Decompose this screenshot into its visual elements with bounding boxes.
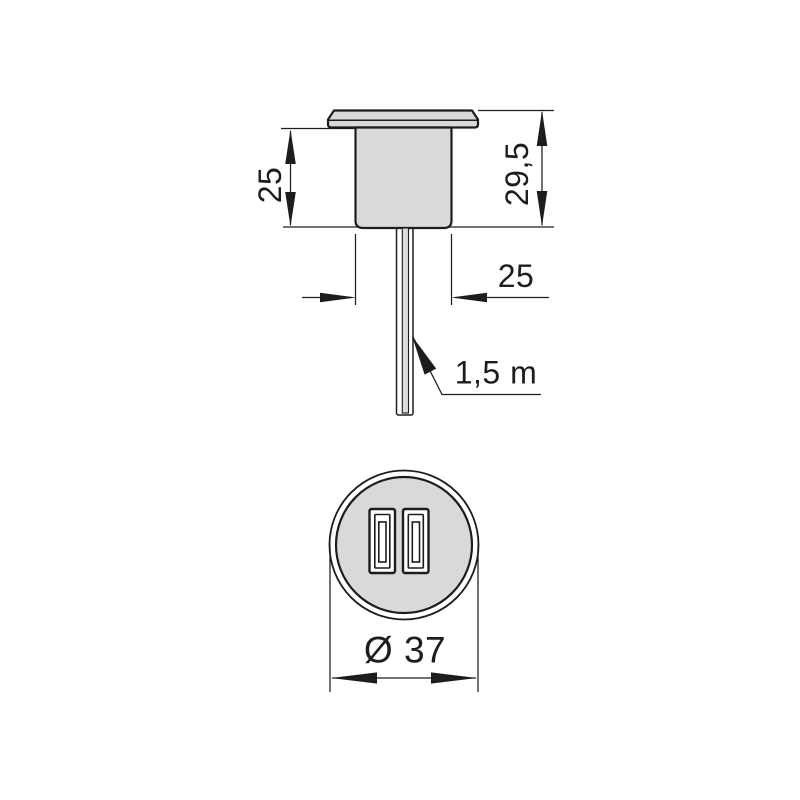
front-view: Ø 37 [330,471,479,693]
cable [397,228,414,415]
dimension-label-total-height: 29,5 [499,142,535,206]
usb-port-tongue [379,522,386,562]
arrow-right-icon [431,672,477,683]
arrow-right-icon [320,293,356,303]
dimension-label-diameter: Ø 37 [364,630,446,671]
cable-length-callout: 1,5 m [412,336,541,395]
usb-port-right [403,509,429,573]
arrow-down-icon [537,191,548,227]
dimension-label-body-height: 25 [252,167,288,204]
dimension-total-height: 29,5 [499,111,547,227]
technical-drawing: 25 29,5 [0,0,800,800]
dimension-label-body-width: 25 [498,258,535,294]
arrow-left-icon [331,672,377,683]
arrow-up-icon [285,130,296,165]
dimension-label-cable-length: 1,5 m [455,355,538,391]
drawing-canvas: 25 29,5 [0,0,800,800]
flange [328,111,478,128]
dimension-body-width: 25 [302,234,549,305]
arrow-left-icon [451,293,487,303]
arrow-up-left-icon [412,336,436,375]
body [356,128,452,229]
usb-port-left [370,509,396,573]
arrow-up-icon [537,111,548,147]
cable-core [402,228,408,413]
dimension-body-height: 25 [252,130,296,227]
side-view: 25 29,5 [252,111,554,416]
usb-port-tongue [412,522,419,562]
